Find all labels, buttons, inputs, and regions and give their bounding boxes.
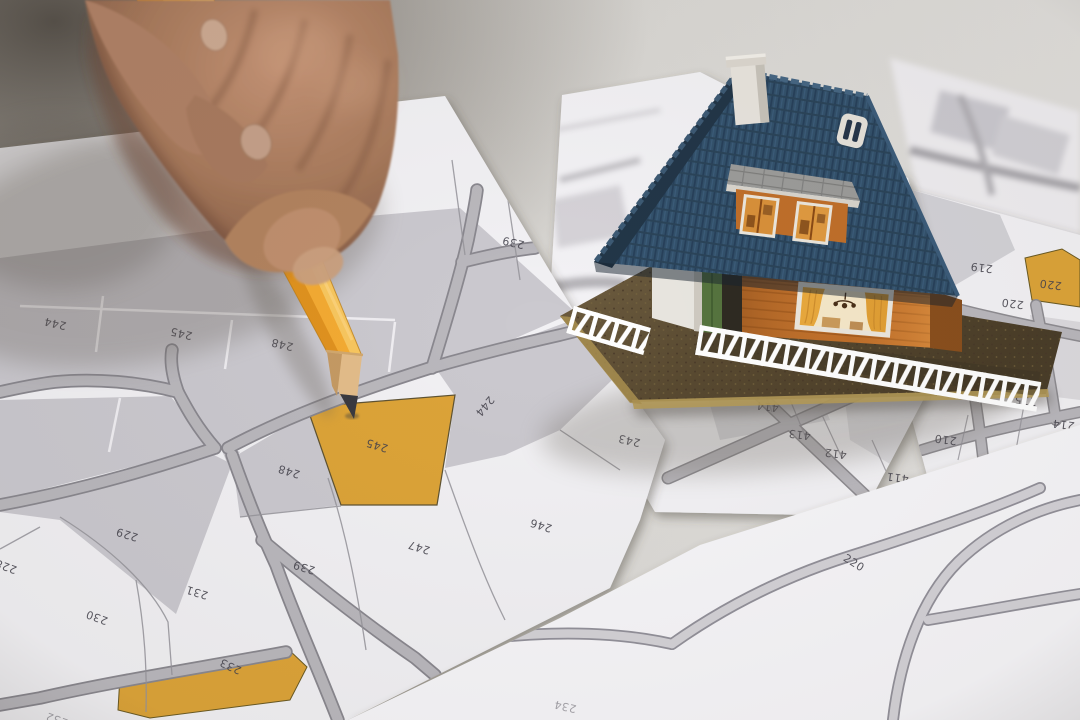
cadastral-map-photo: 220 219 220 217 216 215 214 212 210 209 — [0, 0, 1080, 720]
vignette — [0, 0, 1080, 720]
photo-scene: 220 219 220 217 216 215 214 212 210 209 — [0, 0, 1080, 720]
